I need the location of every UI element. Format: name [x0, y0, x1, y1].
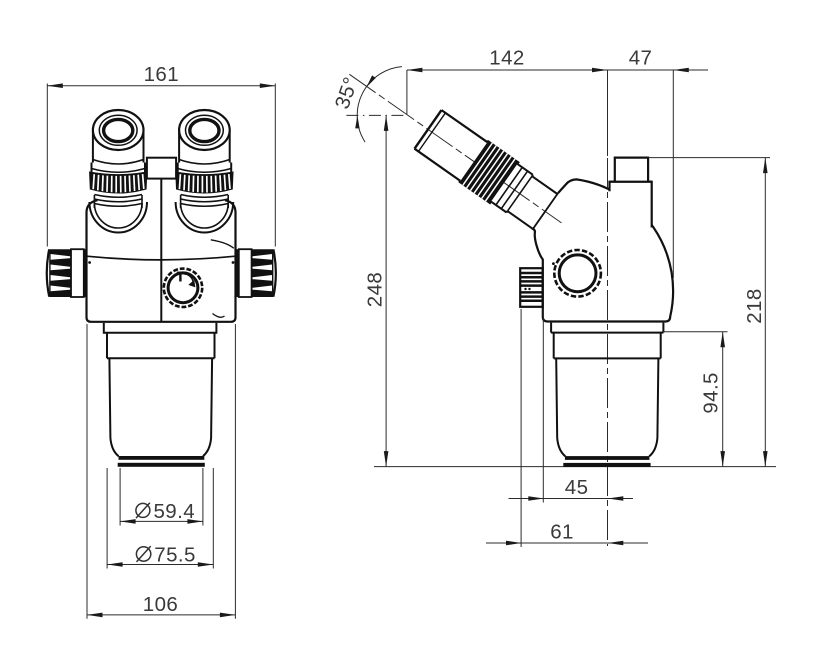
svg-text:142: 142 [489, 47, 524, 70]
svg-text:47: 47 [629, 47, 653, 70]
svg-text:161: 161 [144, 63, 179, 86]
svg-text:59.4: 59.4 [154, 500, 196, 523]
svg-text:106: 106 [143, 593, 178, 616]
svg-text:45: 45 [565, 476, 589, 499]
svg-text:218: 218 [743, 288, 766, 323]
svg-text:61: 61 [550, 521, 574, 544]
svg-text:94.5: 94.5 [699, 372, 722, 414]
svg-text:75.5: 75.5 [154, 544, 196, 567]
svg-text:248: 248 [363, 272, 386, 307]
